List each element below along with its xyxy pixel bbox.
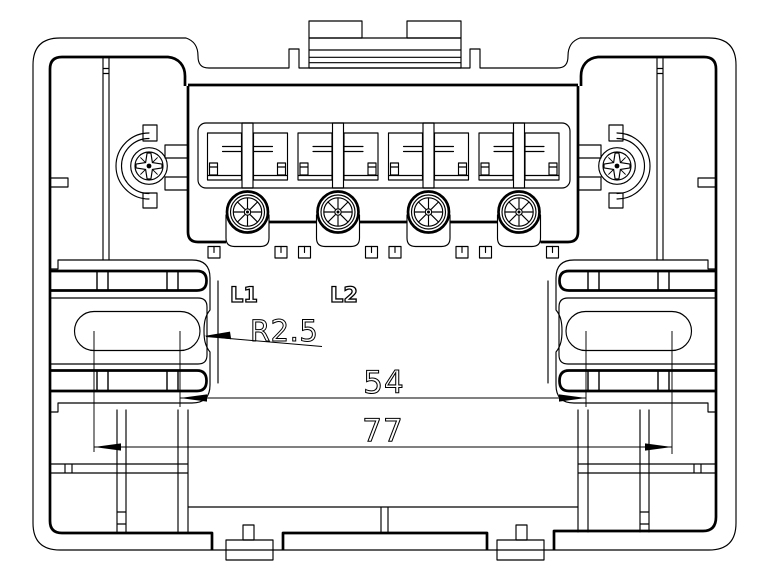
- shoulder-rib-left: [103, 57, 109, 260]
- mounting-slot-assembly-left: [50, 260, 218, 532]
- engineering-drawing-canvas: 54 77 R2.5 L1 L2: [0, 0, 766, 574]
- shoulder-rib-right: [657, 57, 663, 260]
- top-clip: [309, 21, 461, 68]
- terminal-pole-2: [298, 123, 378, 258]
- mounting-slot-assembly-right: [548, 260, 716, 532]
- snap-foot-left: [226, 525, 273, 560]
- snap-foot-right: [497, 525, 544, 560]
- mounting-screw-right: [578, 125, 650, 208]
- terminal-pole-1: [208, 123, 288, 258]
- dimension-annotations: 54 77 R2.5: [94, 314, 672, 454]
- dimension-77-text: 77: [362, 413, 403, 449]
- terminal-block: [188, 85, 578, 258]
- terminal-base-drawing: 54 77 R2.5 L1 L2: [0, 0, 766, 574]
- terminal-pole-3: [389, 123, 469, 258]
- dimension-54: 54: [180, 365, 586, 402]
- dimension-radius: R2.5: [204, 314, 322, 348]
- dimension-77: 77: [94, 413, 672, 451]
- terminal-pole-4: [479, 123, 559, 258]
- side-notch-right: [698, 178, 716, 187]
- case-inner-outline: [50, 57, 716, 550]
- side-notch-left: [50, 178, 68, 187]
- terminal-labels: L1 L2: [230, 283, 358, 307]
- terminal-label-l2: L2: [330, 283, 358, 307]
- terminal-label-l1: L1: [230, 283, 258, 307]
- dimension-r25-text: R2.5: [250, 314, 318, 348]
- dimension-54-text: 54: [363, 365, 404, 401]
- mounting-screw-left: [116, 125, 188, 208]
